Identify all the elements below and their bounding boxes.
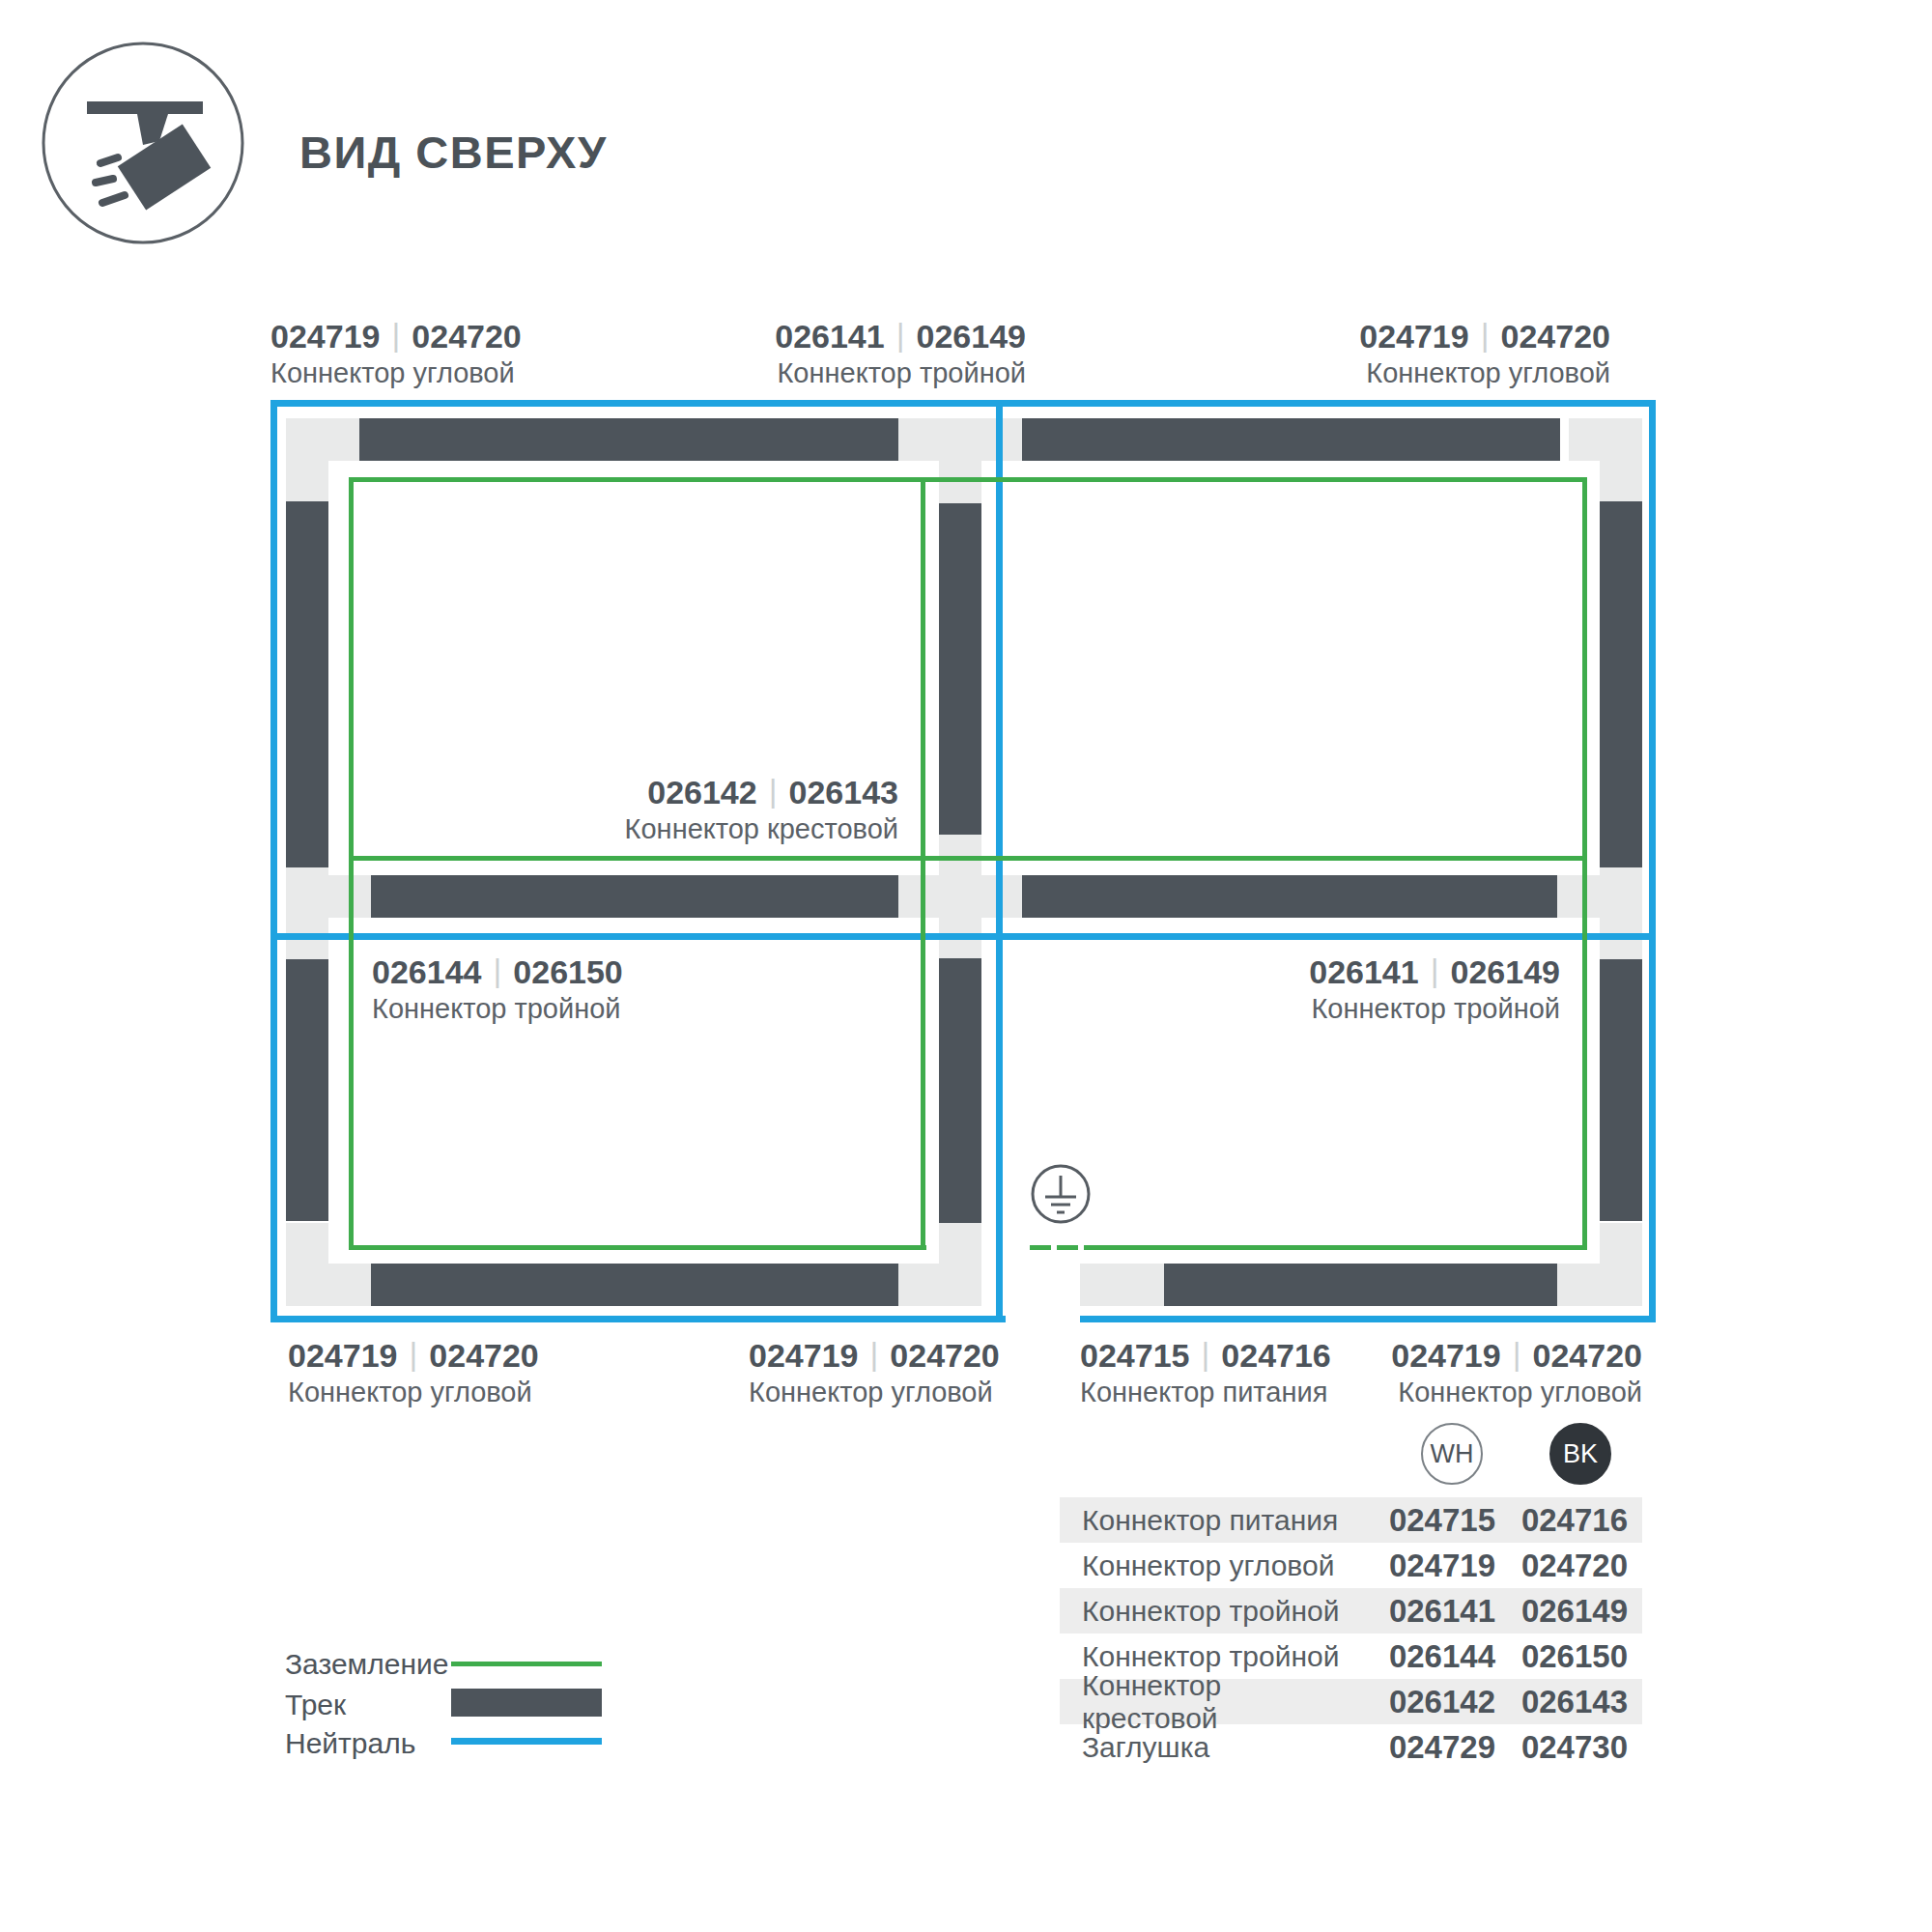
table-row: Коннектор тройной 026141 026149 (1060, 1588, 1642, 1634)
track-segment (1600, 959, 1642, 1221)
tee-connector-block (1557, 875, 1600, 918)
neutral-line (270, 1316, 1006, 1322)
neutral-line (1649, 400, 1656, 1322)
track-segment (939, 958, 981, 1223)
corner-connector-block (286, 418, 328, 501)
product-table: Коннектор питания 024715 024716 Коннекто… (1060, 1497, 1642, 1770)
row-name: Коннектор тройной (1060, 1595, 1350, 1628)
label-codes: 024719|024720 (270, 319, 522, 354)
row-code-wh: 026141 (1350, 1593, 1495, 1630)
tee-connector-block (286, 867, 328, 959)
badge-label: BK (1563, 1439, 1598, 1469)
row-name: Коннектор угловой (1060, 1549, 1350, 1582)
table-row: Коннектор питания 024715 024716 (1060, 1497, 1642, 1543)
row-code-bk: 026150 (1495, 1638, 1628, 1675)
ground-line (1582, 477, 1587, 1250)
label-name: Коннектор угловой (749, 1378, 980, 1406)
label-divider: | (380, 316, 412, 353)
label-corner-connector: 024719|024720 Коннектор угловой (270, 319, 522, 387)
label-codes: 026142|026143 (625, 775, 898, 810)
label-name: Коннектор тройной (372, 994, 623, 1023)
label-divider: | (858, 1335, 890, 1372)
label-cross-connector: 026142|026143 Коннектор крестовой (625, 775, 898, 843)
track-segment (286, 959, 328, 1221)
row-code-bk: 026149 (1495, 1593, 1628, 1630)
row-code-bk: 026143 (1495, 1684, 1628, 1720)
track-segment (371, 875, 898, 918)
row-code-wh: 026142 (1350, 1684, 1495, 1720)
ground-line (349, 1245, 926, 1250)
label-name: Коннектор угловой (1359, 358, 1610, 387)
label-divider: | (397, 1335, 429, 1372)
tee-connector-block (898, 418, 1022, 461)
label-tee-connector: 026144|026150 Коннектор тройной (372, 954, 623, 1023)
color-badge-bk: BK (1549, 1423, 1611, 1485)
page-title: ВИД СВЕРХУ (299, 126, 608, 179)
label-divider: | (757, 772, 789, 809)
row-code-wh: 024719 (1350, 1548, 1495, 1584)
ground-line-swatch (451, 1662, 602, 1666)
label-divider: | (481, 952, 513, 988)
row-code-bk: 024720 (1495, 1548, 1628, 1584)
label-name: Коннектор угловой (288, 1378, 539, 1406)
row-name: Коннектор тройной (1060, 1640, 1350, 1673)
label-corner-connector: 024719|024720 Коннектор угловой (1359, 319, 1610, 387)
label-power-connector: 024715|024716 Коннектор питания (1080, 1338, 1331, 1406)
ground-line-dash (1057, 1245, 1078, 1250)
label-codes: 024719|024720 (749, 1338, 980, 1373)
power-connector-block (1080, 1264, 1164, 1306)
ground-line (921, 477, 925, 1250)
corner-connector-block (1600, 418, 1642, 501)
label-corner-connector: 024719|024720 Коннектор угловой (749, 1338, 980, 1406)
neutral-line (996, 400, 1003, 1322)
label-name: Коннектор крестовой (625, 814, 898, 843)
row-name: Заглушка (1060, 1731, 1350, 1764)
label-divider: | (1189, 1335, 1221, 1372)
label-name: Коннектор питания (1080, 1378, 1331, 1406)
label-tee-connector: 026141|026149 Коннектор тройной (775, 319, 1026, 387)
color-badge-wh: WH (1421, 1423, 1483, 1485)
ground-line (349, 477, 354, 1250)
corner-connector-block (1557, 1264, 1642, 1306)
table-row: Заглушка 024729 024730 (1060, 1724, 1642, 1770)
row-name: Коннектор питания (1060, 1504, 1350, 1537)
track-segment (286, 501, 328, 867)
page: ВИД СВЕРХУ (0, 0, 1932, 1932)
row-code-wh: 024729 (1350, 1729, 1495, 1766)
corner-connector-block (898, 1264, 981, 1306)
neutral-line (270, 933, 1656, 940)
label-codes: 024719|024720 (1359, 319, 1610, 354)
track-bar-swatch (451, 1689, 602, 1717)
spotlight-track-icon (41, 41, 245, 245)
tee-connector-block (1600, 867, 1642, 959)
neutral-line-swatch (451, 1738, 602, 1745)
neutral-line (1080, 1316, 1656, 1322)
legend-label-track: Трек (285, 1689, 346, 1721)
label-codes: 024719|024720 (288, 1338, 539, 1373)
badge-label: WH (1431, 1439, 1474, 1469)
corner-connector-block (286, 1264, 371, 1306)
table-row: Коннектор крестовой 026142 026143 (1060, 1679, 1642, 1724)
label-name: Коннектор угловой (270, 358, 522, 387)
row-code-wh: 026144 (1350, 1638, 1495, 1675)
ground-line (349, 477, 1587, 482)
label-codes: 026141|026149 (1309, 954, 1560, 989)
label-divider: | (1501, 1335, 1533, 1372)
label-tee-connector: 026141|026149 Коннектор тройной (1309, 954, 1560, 1023)
label-codes: 024715|024716 (1080, 1338, 1331, 1373)
track-segment (1164, 1264, 1557, 1306)
label-codes: 026144|026150 (372, 954, 623, 989)
track-segment (371, 1264, 898, 1306)
row-code-wh: 024715 (1350, 1502, 1495, 1539)
track-segment (1022, 875, 1557, 918)
row-code-bk: 024716 (1495, 1502, 1628, 1539)
earth-ground-icon (1030, 1163, 1092, 1225)
label-name: Коннектор тройной (1309, 994, 1560, 1023)
legend-label-neutral: Нейтраль (285, 1727, 415, 1760)
neutral-line (270, 400, 277, 1322)
neutral-line (270, 400, 1656, 407)
legend-label-ground: Заземление (285, 1648, 448, 1681)
track-segment (939, 501, 981, 835)
label-name: Коннектор угловой (1391, 1378, 1642, 1406)
label-codes: 026141|026149 (775, 319, 1026, 354)
track-segment (359, 418, 898, 461)
ground-line-dash (1030, 1245, 1051, 1250)
label-corner-connector: 024719|024720 Коннектор угловой (288, 1338, 539, 1406)
track-segment (1600, 501, 1642, 867)
label-divider: | (1419, 952, 1451, 988)
label-corner-connector: 024719|024720 Коннектор угловой (1391, 1338, 1642, 1406)
row-name: Коннектор крестовой (1060, 1669, 1350, 1735)
ground-line (1084, 1245, 1587, 1250)
label-divider: | (885, 316, 917, 353)
ground-line (349, 856, 1587, 861)
label-divider: | (1469, 316, 1501, 353)
track-segment (1022, 418, 1560, 461)
row-code-bk: 024730 (1495, 1729, 1628, 1766)
label-name: Коннектор тройной (775, 358, 1026, 387)
table-row: Коннектор угловой 024719 024720 (1060, 1543, 1642, 1588)
label-codes: 024719|024720 (1391, 1338, 1642, 1373)
tee-connector-block (939, 461, 981, 503)
